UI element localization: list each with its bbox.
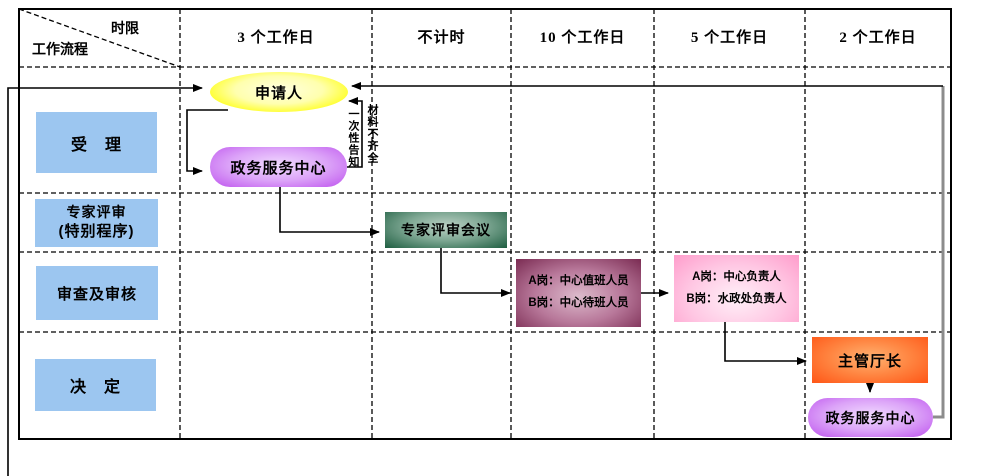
node-label: 申请人 <box>255 82 303 103</box>
column-header-10-working-days: 10 个工作日 <box>511 26 654 50</box>
node-duty-post-staff: A岗：中心值班人员 B岗：中心待班人员 <box>516 259 641 327</box>
column-header-untimed: 不计时 <box>372 26 511 50</box>
node-label-line2: B岗：水政处负责人 <box>686 289 786 311</box>
column-header-3-working-days: 3 个工作日 <box>180 26 372 50</box>
node-label: 政务服务中心 <box>230 157 326 178</box>
lane-label-decision: 决 定 <box>35 359 156 411</box>
node-responsible-post-staff: A岗：中心负责人 B岗：水政处负责人 <box>674 255 799 322</box>
column-header-2-working-days: 2 个工作日 <box>805 26 951 50</box>
column-header-5-working-days: 5 个工作日 <box>654 26 805 50</box>
lane-label-text-line2: (特别程序) <box>59 222 135 242</box>
lane-label-text: 审查及审核 <box>57 283 137 304</box>
node-label: 政务服务中心 <box>826 408 916 428</box>
connector-service-center-to-expert-meeting <box>280 187 379 232</box>
node-service-center-top: 政务服务中心 <box>210 147 347 187</box>
node-label: 主管厅长 <box>838 350 902 371</box>
connector-expert-meeting-to-duty-post <box>441 248 510 293</box>
note-materials-incomplete: 材料不齐全 <box>364 104 380 172</box>
lane-label-expert-review: 专家评审 (特别程序) <box>35 199 158 247</box>
node-label-line1: A岗：中心值班人员 <box>528 271 628 293</box>
node-label: 专家评审会议 <box>401 220 491 240</box>
node-director-general: 主管厅长 <box>812 337 928 383</box>
node-label-line1: A岗：中心负责人 <box>692 267 781 289</box>
lane-label-text: 决 定 <box>70 373 121 397</box>
workflow-swimlane-diagram: 时限 工作流程 3 个工作日 不计时 10 个工作日 5 个工作日 2 个工作日… <box>0 0 987 476</box>
lane-label-examination-audit: 审查及审核 <box>36 266 158 320</box>
node-expert-review-meeting: 专家评审会议 <box>385 212 507 248</box>
connector-lead-post-to-director <box>725 322 806 361</box>
corner-label-time-limit: 时限 <box>88 18 162 38</box>
lane-label-text: 受 理 <box>71 131 122 155</box>
note-one-time-notice: 一次性告知 <box>345 108 361 176</box>
corner-label-workflow: 工作流程 <box>20 39 100 59</box>
node-label-line2: B岗：中心待班人员 <box>528 293 628 315</box>
node-service-center-bottom: 政务服务中心 <box>808 398 933 437</box>
lane-label-text: 专家评审 <box>67 203 127 222</box>
node-applicant: 申请人 <box>210 72 348 112</box>
lane-label-acceptance: 受 理 <box>36 112 157 173</box>
